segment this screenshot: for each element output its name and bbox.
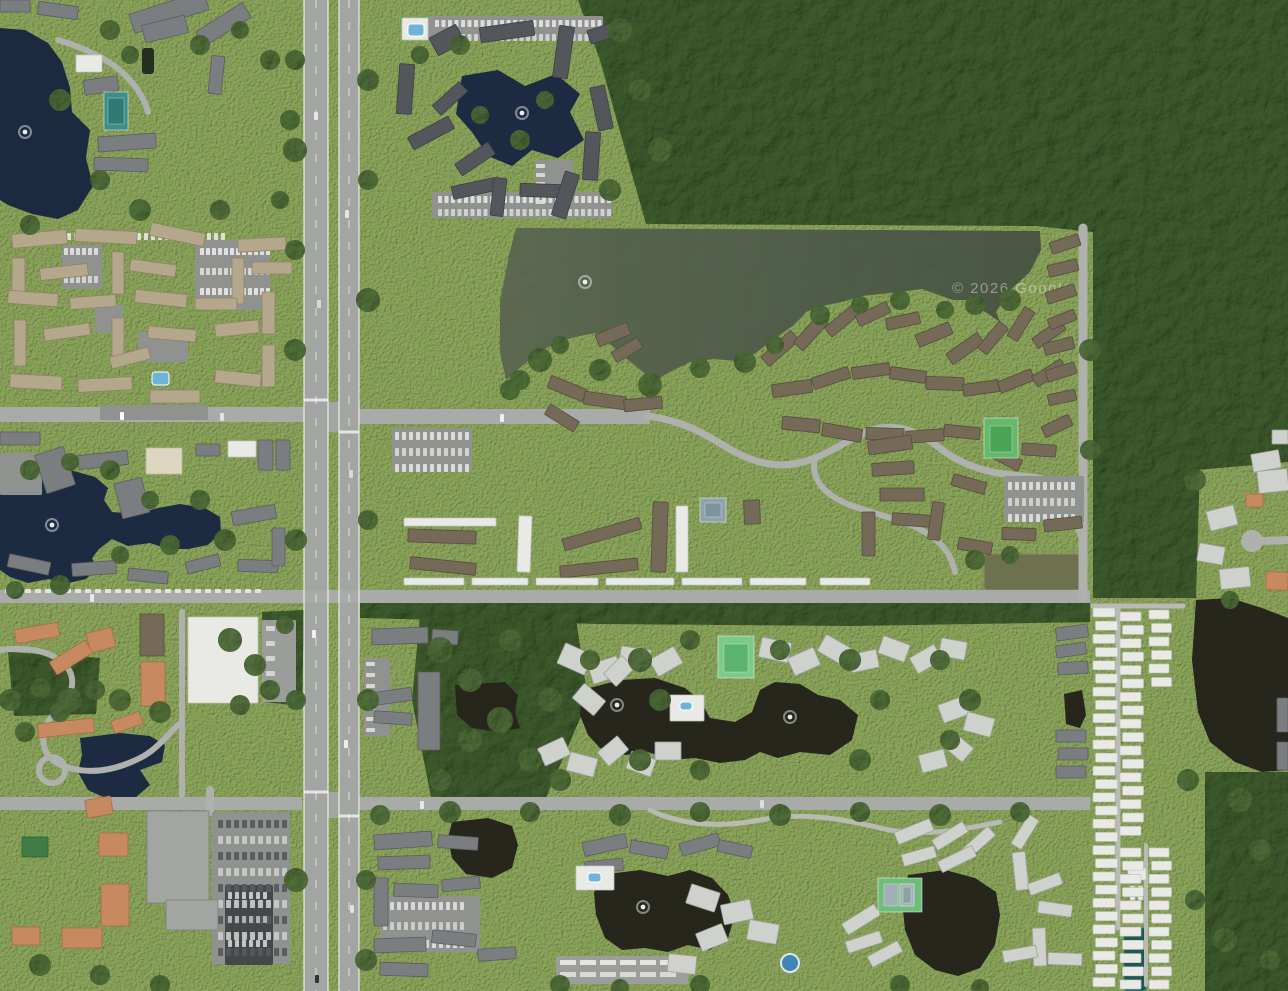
satellite-map[interactable]: © 2026 Google	[0, 0, 1288, 991]
map-canvas[interactable]: © 2026 Google	[0, 0, 1288, 991]
